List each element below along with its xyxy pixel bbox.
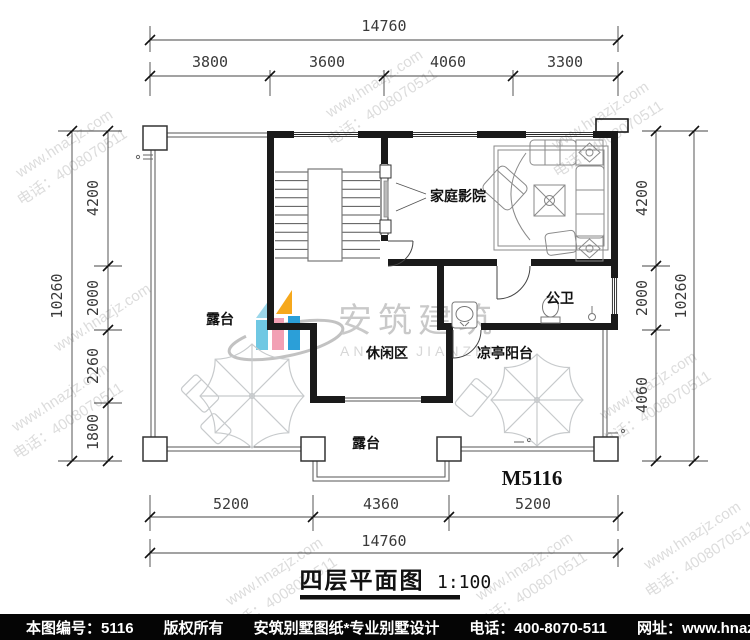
recliner-chair xyxy=(481,164,529,212)
bay-opening-sill xyxy=(345,398,421,401)
room-label-home-theater: 家庭影院 xyxy=(430,188,486,204)
info-bar: 本图编号：5116 版权所有 安筑别墅图纸*专业别墅设计 电话：400-8070… xyxy=(0,614,750,640)
drawing-title: 四层平面图 1:100 xyxy=(300,567,492,600)
dim-left-seg-2: 2000 xyxy=(84,280,102,316)
room-label-terrace-left: 露台 xyxy=(206,311,234,327)
label-leader-lines xyxy=(396,183,426,211)
room-label-terrace-bottom: 露台 xyxy=(352,435,380,451)
screen-panel xyxy=(384,181,388,217)
sink xyxy=(452,302,477,328)
info-phone: 电话：400-8070-511 xyxy=(469,617,607,638)
dim-top-seg-3: 4060 xyxy=(430,53,466,71)
media-wall-fittings xyxy=(380,165,391,233)
floor-plan-drawing: www.hnazjz.com 电话：4008070511 www.hnazjz.… xyxy=(0,0,750,614)
armchair-bottom xyxy=(545,230,578,256)
info-website: 网址：www.hnazjz.com xyxy=(637,617,750,638)
title-text: 四层平面图 xyxy=(300,567,425,593)
umbrella-right xyxy=(454,354,583,446)
dimension-top: 14760 3800 3600 4060 3300 xyxy=(145,17,623,96)
dim-bottom-seg-1: 5200 xyxy=(213,495,249,513)
info-copyright: 版权所有 xyxy=(164,617,224,638)
floor-drain xyxy=(589,306,596,321)
dim-right-seg-1: 4200 xyxy=(633,180,651,216)
room-label-pavilion: 凉亭阳台 xyxy=(477,345,533,361)
dim-bottom-seg-3: 5200 xyxy=(515,495,551,513)
coffee-table xyxy=(534,185,565,216)
dim-right-seg-3: 4060 xyxy=(633,377,651,413)
speaker-bottom-right xyxy=(576,236,603,261)
model-number: M5116 xyxy=(502,466,563,490)
rug-inner xyxy=(498,150,604,246)
stair-landing xyxy=(308,169,342,261)
dim-right-seg-2: 2000 xyxy=(633,280,651,316)
dim-bottom-seg-2: 4360 xyxy=(363,495,399,513)
room-label-leisure: 休闲区 xyxy=(365,345,408,361)
sofa-right xyxy=(576,166,604,238)
info-company: 安筑别墅图纸*专业别墅设计 xyxy=(254,617,440,638)
staircase xyxy=(275,169,380,261)
dim-left-seg-1: 4200 xyxy=(84,180,102,216)
dim-top-seg-4: 3300 xyxy=(547,53,583,71)
info-drawing-number: 本图编号：5116 xyxy=(26,617,134,638)
dim-top-seg-1: 3800 xyxy=(192,53,228,71)
dim-left-total: 10260 xyxy=(48,273,66,318)
doors xyxy=(388,241,530,358)
door-bathroom xyxy=(497,266,530,299)
title-underline xyxy=(300,595,460,600)
dim-top-total: 14760 xyxy=(361,17,406,35)
dim-bottom-total: 14760 xyxy=(361,532,406,550)
dim-right-total: 10260 xyxy=(672,273,690,318)
dim-left-seg-4: 1800 xyxy=(84,414,102,450)
room-label-bathroom: 公卫 xyxy=(546,290,574,306)
title-scale: 1:100 xyxy=(437,572,491,593)
dim-left-seg-3: 2260 xyxy=(84,348,102,384)
plan-svg: www.hnazjz.com 电话：4008070511 www.hnazjz.… xyxy=(0,0,750,614)
screen-curve xyxy=(511,153,530,240)
dim-top-seg-2: 3600 xyxy=(309,53,345,71)
